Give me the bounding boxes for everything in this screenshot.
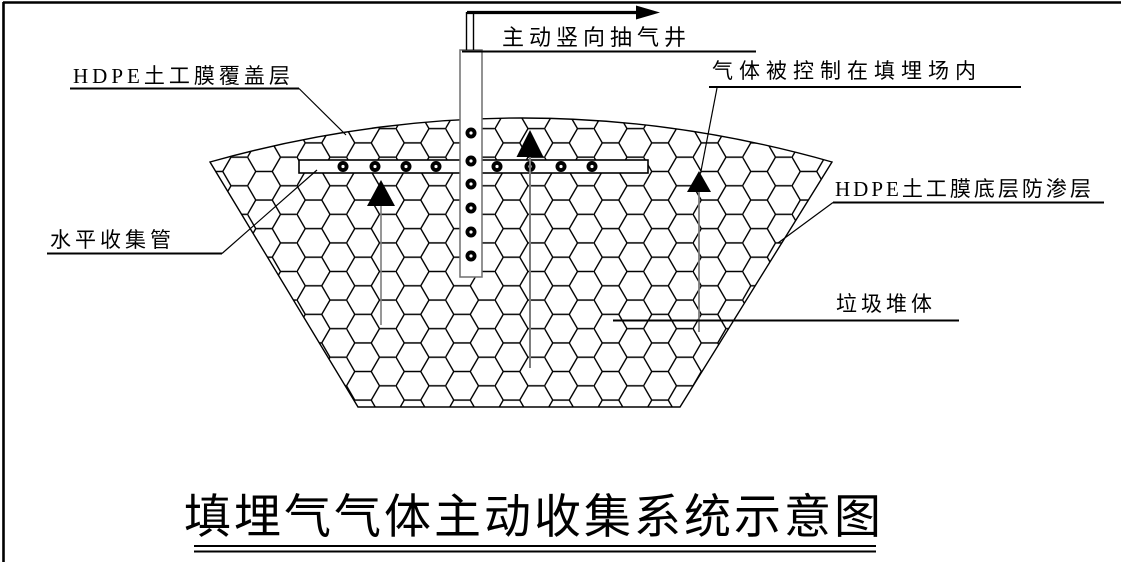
perforation-dot <box>466 156 477 167</box>
annotation-hdpe-liner: HDPE土工膜底层防渗层 <box>778 177 1104 243</box>
extraction-flow-arrow <box>467 6 660 20</box>
perforation-dot <box>556 161 567 172</box>
perforation-dot <box>401 161 412 172</box>
perforation-dot <box>338 161 349 172</box>
annotation-extraction-well: 主动竖向抽气井 <box>462 25 756 52</box>
hdpe-cover-label: HDPE土工膜覆盖层 <box>73 64 294 88</box>
perforation-dot <box>370 161 381 172</box>
landfill-gas-diagram: 主动竖向抽气井 HDPE土工膜覆盖层 气体被控制在填埋场内 HDPE土工膜底层防… <box>0 0 1122 563</box>
perforation-dot <box>466 128 477 139</box>
horizontal-pipe-label: 水平收集管 <box>50 228 175 252</box>
landfill-gas-diagram-page: 主动竖向抽气井 HDPE土工膜覆盖层 气体被控制在填埋场内 HDPE土工膜底层防… <box>0 0 1122 563</box>
perforation-dot <box>466 251 477 262</box>
waste-body-label: 垃圾堆体 <box>836 292 936 316</box>
hdpe-cover-leader-line <box>299 89 346 136</box>
perforation-dot <box>466 203 477 214</box>
perforation-dot <box>587 161 598 172</box>
perforation-dot <box>466 227 477 238</box>
hdpe-liner-label: HDPE土工膜底层防渗层 <box>835 177 1094 201</box>
gas-contained-label: 气体被控制在填埋场内 <box>712 59 982 83</box>
diagram-title-block: 填埋气气体主动收集系统示意图 <box>184 492 884 552</box>
right-arrow-icon <box>636 6 660 20</box>
perforation-dot <box>492 161 503 172</box>
extraction-well-label: 主动竖向抽气井 <box>502 25 691 50</box>
diagram-title: 填埋气气体主动收集系统示意图 <box>184 492 884 544</box>
annotation-hdpe-cover: HDPE土工膜覆盖层 <box>70 64 346 135</box>
wellhead-riser-pipe <box>467 12 474 50</box>
perforation-dot <box>431 161 442 172</box>
perforation-dot <box>466 179 477 190</box>
